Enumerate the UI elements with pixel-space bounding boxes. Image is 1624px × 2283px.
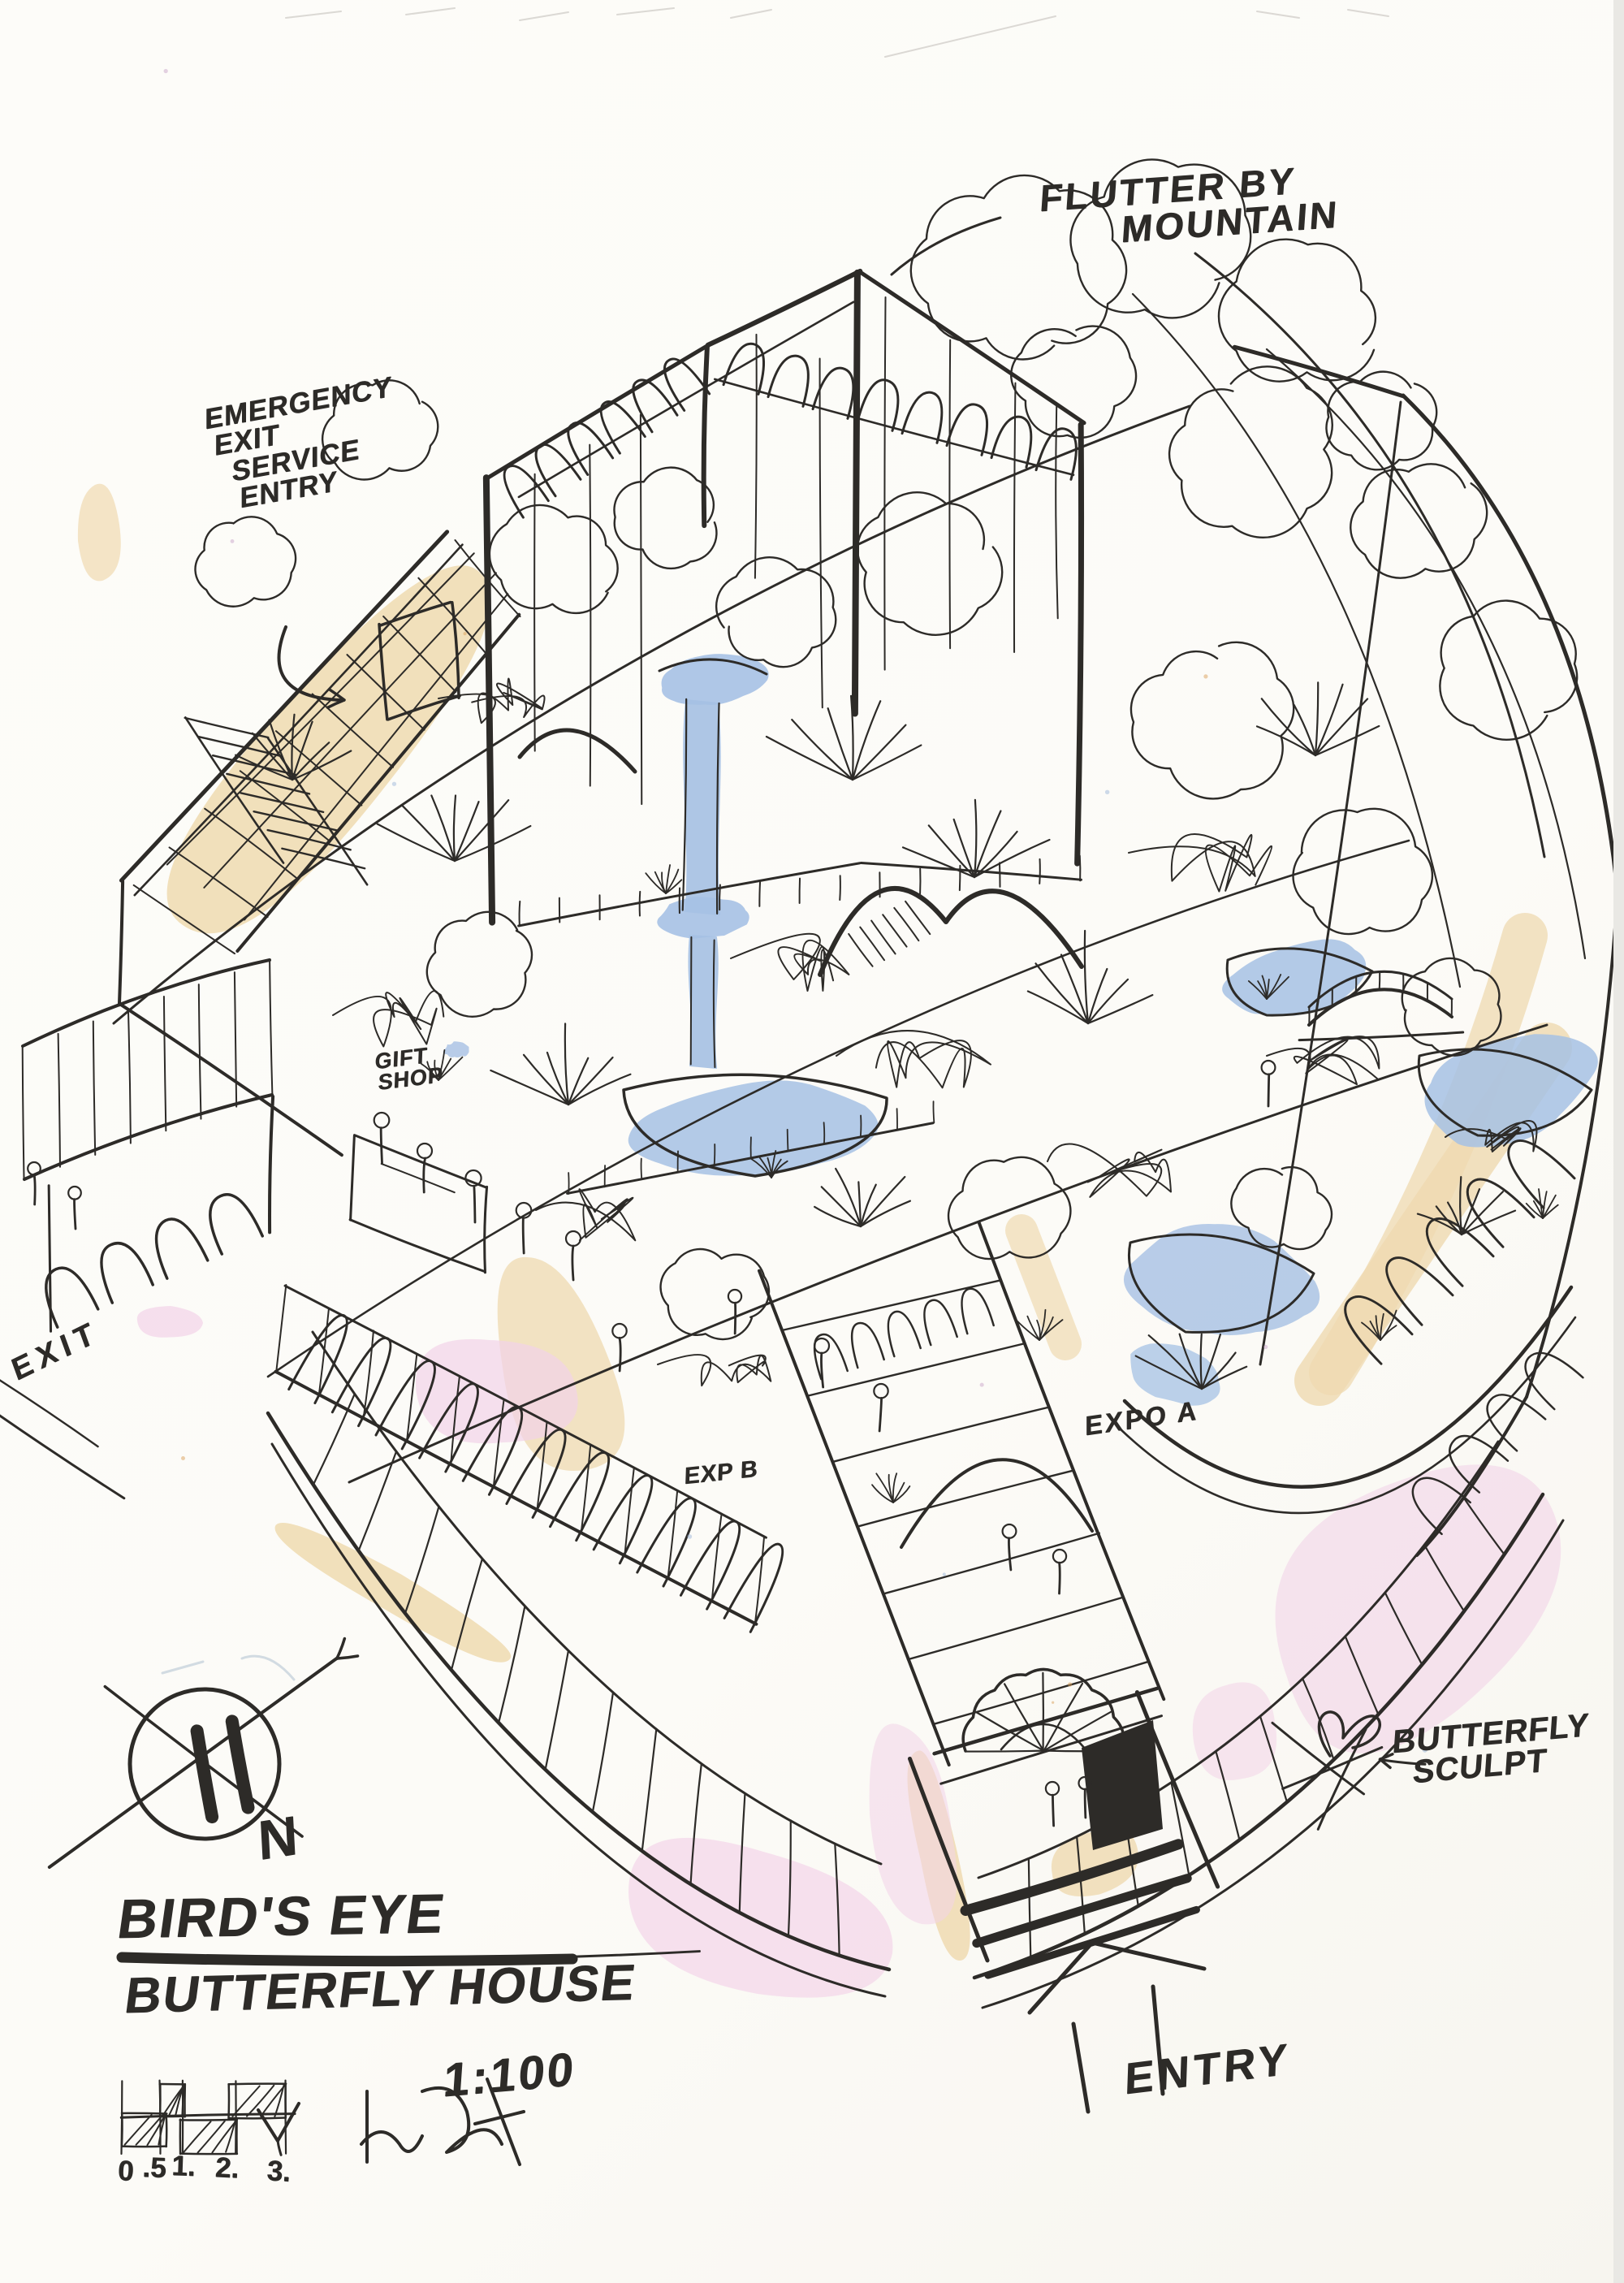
visitor-figures bbox=[28, 1061, 1275, 1826]
architect-signature bbox=[361, 2079, 524, 2164]
sketch-canvas bbox=[0, 0, 1624, 2283]
sketch-sheet: FLUTTER BY MOUNTAIN EMERGENCY EXIT SERVI… bbox=[0, 0, 1624, 2283]
scan-artifacts bbox=[162, 8, 1427, 1753]
scan-edge-strip bbox=[1613, 0, 1624, 2283]
